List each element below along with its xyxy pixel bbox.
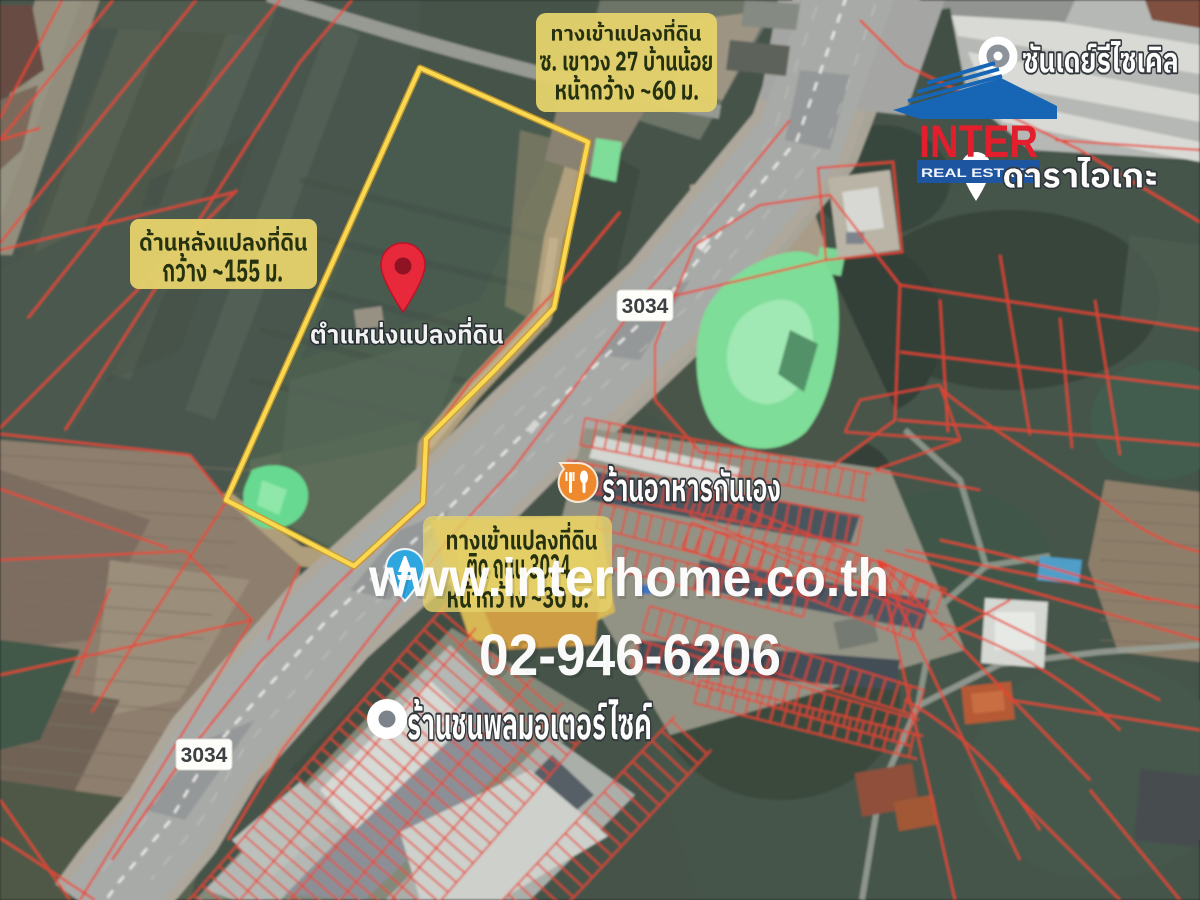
svg-text:3034: 3034 xyxy=(622,295,669,318)
svg-text:www.interhome.co.th: www.interhome.co.th xyxy=(368,548,889,608)
svg-text:02-946-6206: 02-946-6206 xyxy=(479,623,781,688)
svg-text:3034: 3034 xyxy=(181,744,228,767)
svg-text:INTER: INTER xyxy=(919,116,1038,167)
